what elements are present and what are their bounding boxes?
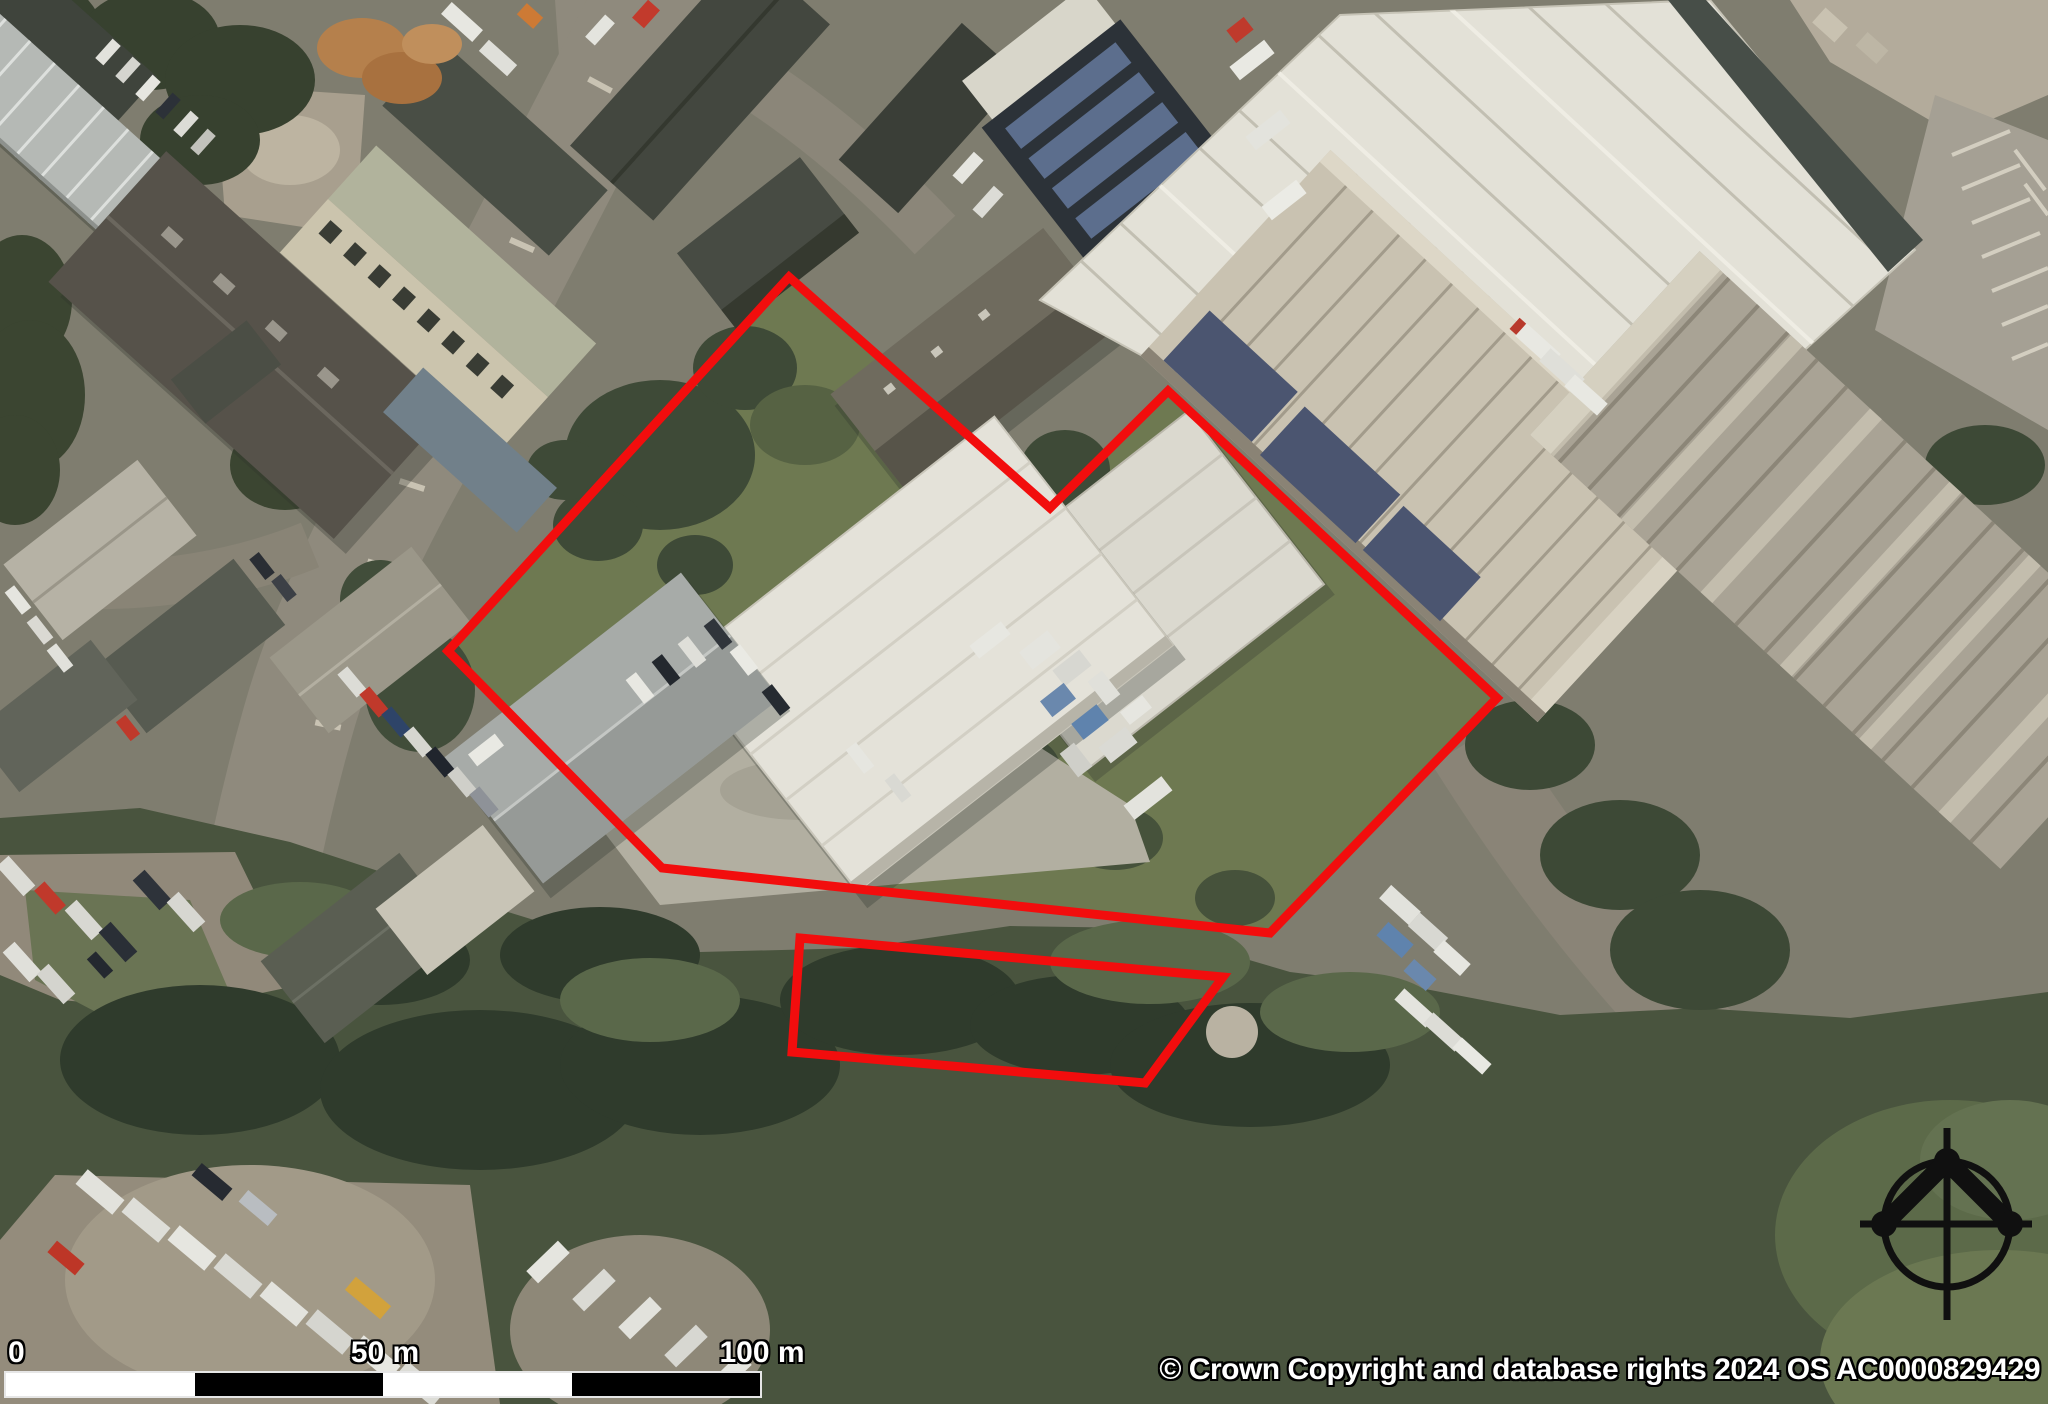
scale-label-zero: 0: [8, 1336, 25, 1370]
scale-bar-segment: [383, 1373, 572, 1396]
scale-label-fifty: 50 m: [351, 1336, 419, 1370]
scale-label-hundred: 100 m: [719, 1336, 804, 1370]
map-canvas[interactable]: 0 50 m 100 m © Crown Copyright and datab…: [0, 0, 2048, 1404]
aerial-photo: [0, 0, 2048, 1404]
scale-bar-segment: [6, 1373, 195, 1396]
copyright-attribution: © Crown Copyright and database rights 20…: [1159, 1353, 2040, 1387]
scale-bar-segment: [572, 1373, 761, 1396]
scale-bar: [4, 1371, 762, 1398]
scale-bar-segment: [195, 1373, 384, 1396]
storage-tank: [1206, 1006, 1258, 1058]
